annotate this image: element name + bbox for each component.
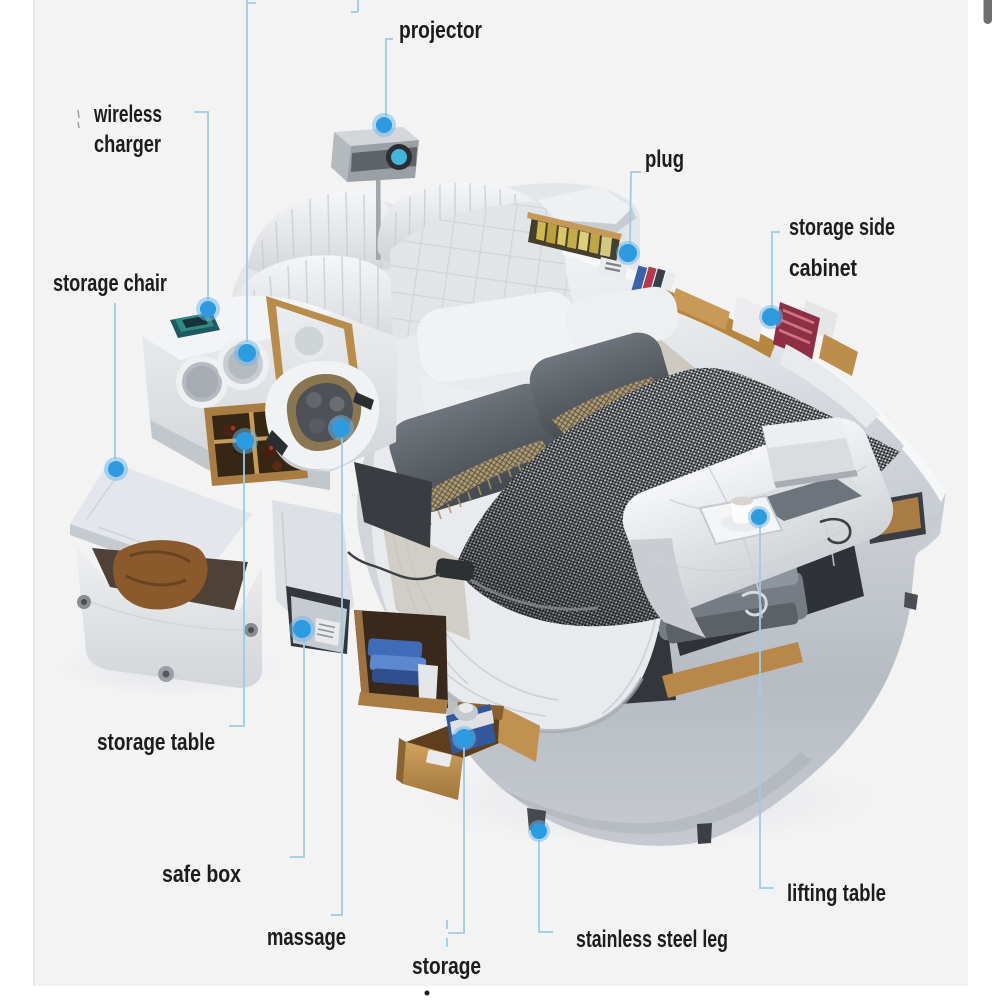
svg-text:wireless: wireless xyxy=(93,101,162,128)
svg-text:stainless steel leg: stainless steel leg xyxy=(576,926,728,953)
svg-text:plug: plug xyxy=(645,146,684,173)
svg-text:lifting table: lifting table xyxy=(787,880,886,907)
svg-text:projector: projector xyxy=(399,17,482,44)
svg-text:safe box: safe box xyxy=(162,861,242,888)
svg-text:storage table: storage table xyxy=(97,729,215,756)
svg-text:charger: charger xyxy=(94,131,161,158)
svg-text:cabinet: cabinet xyxy=(789,255,857,282)
svg-text:massage: massage xyxy=(267,924,346,951)
svg-text:storage side: storage side xyxy=(789,214,895,241)
svg-text:storage: storage xyxy=(412,953,481,980)
svg-text:storage chair: storage chair xyxy=(53,270,167,297)
